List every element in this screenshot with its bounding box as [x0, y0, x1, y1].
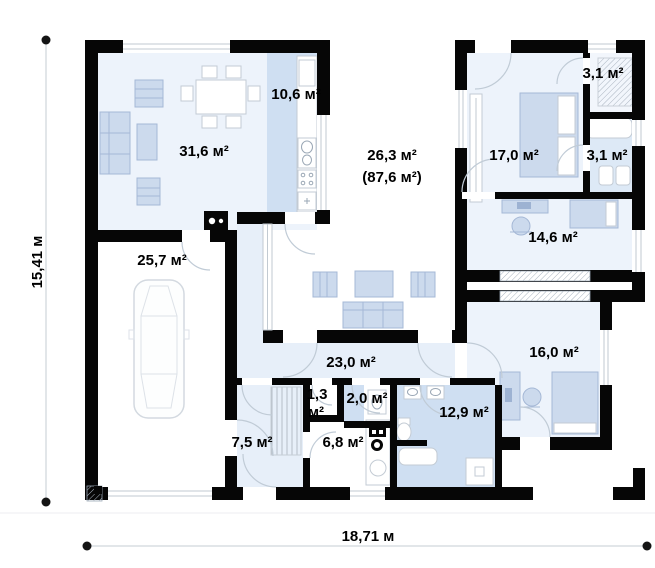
- pillow-icon: [554, 423, 596, 433]
- window: [588, 40, 616, 53]
- outdoor-armchair-icon: [313, 272, 337, 297]
- room-label-terrace-total: (87,6 м²): [362, 169, 421, 186]
- sink-icon: [427, 386, 444, 399]
- height-dimension-label: 15,41 м: [29, 236, 46, 289]
- half-wall: [397, 440, 427, 446]
- window-band: [500, 271, 590, 301]
- coffee-table-icon: [137, 124, 157, 160]
- room-label-utility: 6,8 м²: [322, 434, 363, 451]
- kitchen-counter: [297, 56, 317, 212]
- sink-icon: [298, 138, 316, 168]
- room-label-wc: 2,0 м²: [346, 390, 387, 407]
- floor-plan-svg: 31,6 м² 10,6 м² 26,3 м² (87,6 м²) 25,7 м…: [0, 0, 655, 568]
- stove-icon: [298, 170, 316, 188]
- armchair-icon: [135, 80, 163, 107]
- window: [600, 330, 612, 385]
- room-label-terrace: 26,3 м²: [367, 147, 416, 164]
- window: [632, 120, 645, 146]
- door: [285, 212, 315, 254]
- room-label-bathroom-main: 12,9 м²: [439, 404, 488, 421]
- room-label-bedroom1: 17,0 м²: [489, 147, 538, 164]
- utility-fixtures: [366, 420, 390, 485]
- floor-plan-screenshot: 31,6 м² 10,6 м² 26,3 м² (87,6 м²) 25,7 м…: [0, 0, 655, 568]
- toilet-icon: [397, 418, 411, 441]
- sofa-icon: [100, 112, 130, 174]
- dining-table-icon: [196, 80, 246, 114]
- bathtub-icon: [399, 448, 437, 465]
- fridge-icon: [299, 60, 315, 86]
- room-label-living: 31,6 м²: [179, 143, 228, 160]
- outdoor-sofa-icon: [343, 302, 403, 328]
- room-label-bedroom2: 16,0 м²: [529, 344, 578, 361]
- sink-icon: [404, 386, 421, 399]
- pillow-icon: [558, 96, 575, 134]
- window: [632, 230, 645, 272]
- pillow-icon: [558, 137, 575, 175]
- sink-icon: [616, 166, 630, 185]
- fireplace-icon: [204, 211, 228, 230]
- room-label-wardrobe: 3,1 м²: [582, 65, 623, 82]
- window: [123, 40, 230, 53]
- garage-door: [108, 487, 212, 500]
- room-label-office: 14,6 м²: [528, 229, 577, 246]
- window: [350, 487, 385, 500]
- room-label-bathroom-small: 3,1 м²: [586, 147, 627, 164]
- entry-closet-icon: [271, 387, 301, 455]
- room-label-garage: 25,7 м²: [137, 252, 186, 269]
- chair-icon: [523, 388, 541, 406]
- width-dimension-label: 18,71 м: [342, 528, 395, 545]
- outdoor-table-icon: [355, 271, 393, 297]
- chimney-icon: [87, 486, 102, 501]
- outdoor-armchair-icon: [411, 272, 435, 297]
- terrace-furniture: [313, 271, 435, 328]
- window: [317, 115, 330, 210]
- room-label-closet-2: м²: [308, 404, 324, 421]
- sink-icon: [599, 166, 613, 185]
- room-label-closet-1: 1,3: [307, 386, 328, 403]
- room-label-hall: 23,0 м²: [326, 354, 375, 371]
- room-label-kitchen: 10,6 м²: [271, 86, 320, 103]
- car-icon: [129, 280, 189, 418]
- room-label-entry: 7,5 м²: [231, 434, 272, 451]
- armchair-icon: [137, 178, 160, 205]
- window: [455, 90, 467, 148]
- shower-icon: [466, 458, 493, 485]
- bathtub-icon: [586, 118, 632, 138]
